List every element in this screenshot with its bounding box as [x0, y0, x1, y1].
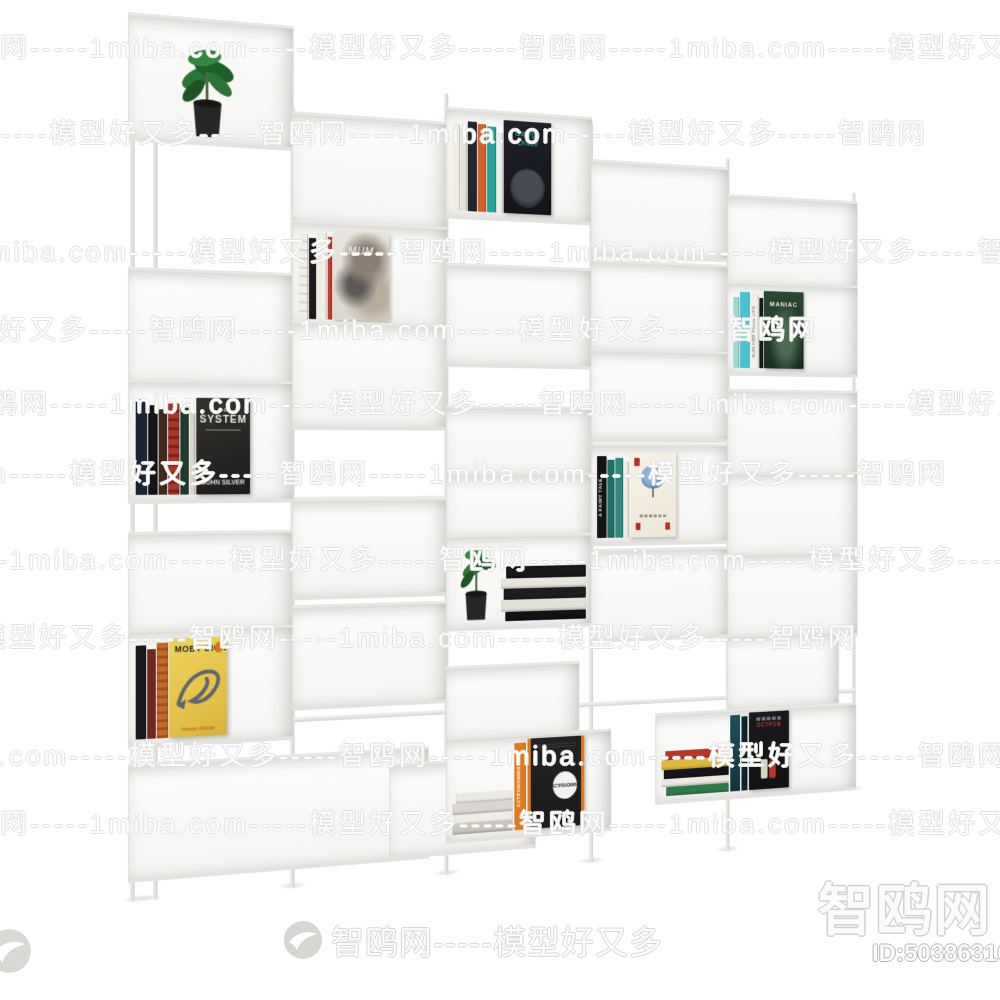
book-cover-mum: MUM: [333, 231, 389, 321]
bird-swoosh-logo-icon: [283, 920, 323, 960]
shelf-box: [128, 530, 294, 637]
book-spine: [740, 292, 750, 368]
shelf-box: [292, 111, 448, 231]
book-cover-moby: MOBY DICK Herman Melville: [169, 637, 227, 738]
book-spine: [487, 126, 496, 212]
book-spine: [168, 403, 179, 494]
book-spine: [461, 128, 467, 211]
red-seal: [634, 458, 639, 466]
tree-trunk: [652, 487, 654, 498]
shelf-box: [727, 472, 857, 560]
model-id-text: ID:503863106: [872, 940, 1000, 968]
cover-text-lines: [640, 514, 666, 517]
book-cover-orwell: George Orwell: [504, 120, 552, 215]
badge-title: АСТРОНОМИЯ: [552, 782, 578, 788]
book-title: MANIAC: [764, 300, 804, 309]
circle-badge: АСТРОНОМИЯ: [553, 771, 577, 800]
book-spine: [741, 716, 747, 790]
shelf-box: MOBY DICK Herman Melville: [128, 625, 294, 749]
book-cover-fairy: [629, 452, 676, 537]
shelf-box: MUM: [292, 220, 448, 332]
book-title: George Orwell: [504, 127, 552, 149]
spine-title: A FAIRY TALE: [600, 478, 604, 517]
book-spine: [157, 643, 168, 739]
book-group-fairy: A FAIRY TALE: [597, 452, 723, 538]
potted-plant-small: [453, 540, 498, 623]
book-spine: [180, 408, 188, 495]
book-cover-system: THE SYSTEM JOHN SILVER: [196, 398, 250, 495]
shelf-box: [446, 472, 592, 541]
book-title: SYSTEM: [196, 414, 250, 426]
book-group-ostrov: ОСТРОВ: [661, 707, 850, 797]
book-spine: [148, 405, 158, 495]
book-spine: [317, 232, 327, 319]
figure-red: [636, 523, 641, 530]
book-group-orwell: George Orwell: [453, 117, 586, 217]
book-group-astro: АСТРОНОМИЯ АСТРОНОМИЯ: [453, 734, 605, 835]
snowglobe-illustration: [511, 169, 544, 208]
book-spine-astro: АСТРОНОМИЯ: [514, 742, 526, 830]
shelf-box: [727, 551, 857, 641]
whale-illustration: [173, 662, 224, 716]
product-render-canvas: THE SYSTEM JOHN SILVER MOBY DICK: [0, 0, 1000, 1000]
book-spine: [478, 124, 486, 212]
book-title: MUM: [333, 245, 389, 259]
book-author: Herman Melville: [169, 725, 227, 734]
book-spine: [624, 462, 629, 538]
book-cover-astro: АСТРОНОМИЯ: [528, 735, 585, 829]
book-spine-run: RUN FOR YOUR LIFE: [750, 294, 758, 368]
book-spine: [468, 121, 477, 211]
author-text-line: [756, 716, 781, 721]
book-spine: [309, 238, 316, 319]
stacked-book: [505, 609, 586, 621]
book-spine: [147, 649, 156, 739]
potted-plant: [161, 29, 251, 142]
shelf-box: [292, 601, 448, 711]
shelf-box: [446, 533, 592, 632]
horizontal-book-stack: [453, 790, 513, 835]
blue-tree-illustration: [641, 465, 664, 488]
book-group-maniac: RUN FOR YOUR LIFE MANIAC: [733, 290, 852, 370]
shelf-box: RUN FOR YOUR LIFE MANIAC: [727, 281, 857, 378]
book-spine: [328, 237, 332, 320]
shelf-box: [128, 12, 294, 151]
shelf-box: A FAIRY TALE: [591, 443, 729, 546]
shelf-box: [446, 405, 592, 479]
shelf-box: [128, 746, 429, 883]
book-title: ОСТРОВ: [749, 721, 789, 729]
book-group-system: THE SYSTEM JOHN SILVER: [136, 397, 287, 495]
figure-illustration: [769, 760, 776, 778]
horizontal-book-stack: [501, 565, 586, 622]
book-spine: [733, 297, 739, 368]
bookshelf-unit: THE SYSTEM JOHN SILVER MOBY DICK: [128, 12, 856, 902]
book-spine: [159, 409, 168, 494]
book-spine: [615, 458, 623, 538]
shelf-box: THE SYSTEM JOHN SILVER: [128, 379, 294, 504]
watermark-banner: 智鸥网-----模型好又多: [283, 916, 663, 964]
shelf-box: [446, 263, 592, 370]
book-spine: [607, 460, 614, 538]
book-spine: [453, 124, 461, 211]
bird-swoosh-logo-icon: [0, 928, 32, 974]
shelf-box: ОСТРОВ: [655, 702, 856, 805]
shelf-box: [591, 546, 729, 643]
book-cover-ostrov: ОСТРОВ: [749, 710, 789, 790]
figure-red: [665, 522, 670, 529]
shelf-box: [727, 631, 839, 712]
shelf-box: [591, 159, 729, 262]
spine-title: АСТРОНОМИЯ: [518, 766, 523, 808]
book-author: JOHN SILVER: [196, 479, 250, 486]
shelf-box: [727, 389, 857, 478]
book-group-mum: MUM: [299, 230, 441, 323]
book-spine: [759, 298, 763, 368]
shelf-box: [128, 267, 294, 388]
book-spine: [136, 399, 147, 495]
book-spine: [497, 133, 503, 213]
book-spine-fairy: A FAIRY TALE: [597, 456, 607, 538]
shelf-box: [591, 349, 729, 443]
shelf-box: [292, 497, 448, 600]
figure-illustration: [761, 759, 768, 779]
horizontal-book-stack: [661, 747, 728, 796]
plant-and-stack-group: [453, 538, 586, 623]
shelf-box: George Orwell: [446, 107, 592, 226]
book-spine: [730, 715, 740, 792]
shelf-box: [727, 194, 857, 292]
watermark-corner: 智鸥网: [818, 866, 992, 947]
shelf-box: [591, 259, 729, 358]
book-spine: [299, 234, 308, 319]
cover-text-lines: [536, 740, 577, 748]
book-cover-maniac: MANIAC: [764, 291, 804, 369]
shelf-box: АСТРОНОМИЯ АСТРОНОМИЯ: [446, 728, 612, 844]
book-group-moby: MOBY DICK Herman Melville: [136, 634, 287, 739]
spine-title: RUN FOR YOUR LIFE: [753, 305, 757, 357]
floor-shadow: [120, 893, 164, 904]
shelf-box: [292, 320, 448, 430]
book-spine: [190, 412, 196, 495]
divider: [206, 429, 241, 430]
banner-text: 智鸥网-----模型好又多: [331, 916, 663, 964]
book-spine: [136, 645, 147, 739]
